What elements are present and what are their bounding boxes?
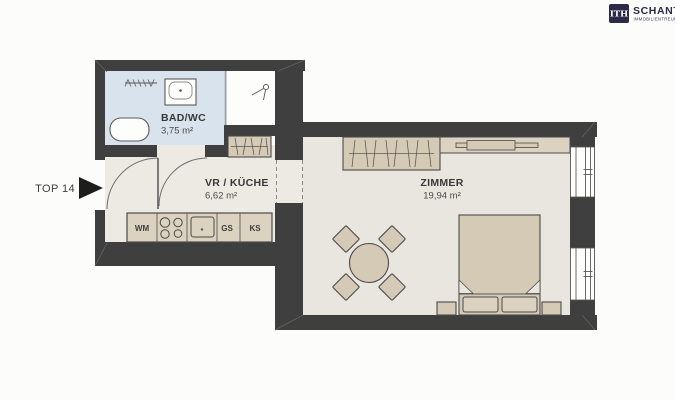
shaft-niche xyxy=(224,70,275,125)
floorplan-drawing: WM GS KS xyxy=(0,0,675,400)
window xyxy=(571,147,595,197)
washing-machine-label: WM xyxy=(135,224,150,233)
hall-wardrobe xyxy=(228,136,271,157)
nightstand xyxy=(542,302,561,315)
window xyxy=(571,248,595,300)
entry-arrow-icon xyxy=(79,177,103,199)
wardrobe xyxy=(343,137,440,170)
passage-floor xyxy=(276,160,303,203)
pillow xyxy=(502,297,537,312)
washbasin xyxy=(165,79,196,105)
double-bed xyxy=(459,215,540,315)
fridge-label: KS xyxy=(249,224,261,233)
room-label-vr: VR / KÜCHE xyxy=(205,176,269,189)
room-label-zimmer: ZIMMER xyxy=(420,177,463,189)
sideboard-radiator xyxy=(440,137,570,153)
room-area-bad: 3,75 m² xyxy=(161,126,193,137)
company-logo: ITH SCHANTL IMMOBILIENTREUHAND GMBH xyxy=(609,4,675,23)
room-area-zimmer: 19,94 m² xyxy=(423,191,461,202)
bathtub xyxy=(110,118,149,141)
logo-box-text: ITH xyxy=(610,10,628,20)
floorplan-page: WM GS KS xyxy=(0,0,675,400)
dishwasher-label: GS xyxy=(221,224,233,233)
room-label-bad: BAD/WC xyxy=(161,112,206,124)
logo-name: SCHANTL xyxy=(633,5,675,17)
logo-subtitle: IMMOBILIENTREUHAND GMBH xyxy=(634,17,675,22)
dining-table xyxy=(350,244,389,283)
room-area-vr: 6,62 m² xyxy=(205,191,237,202)
pillow xyxy=(463,297,498,312)
nightstand xyxy=(437,302,456,315)
kitchen-counter: WM GS KS xyxy=(127,213,272,242)
unit-label: TOP 14 xyxy=(35,183,75,195)
